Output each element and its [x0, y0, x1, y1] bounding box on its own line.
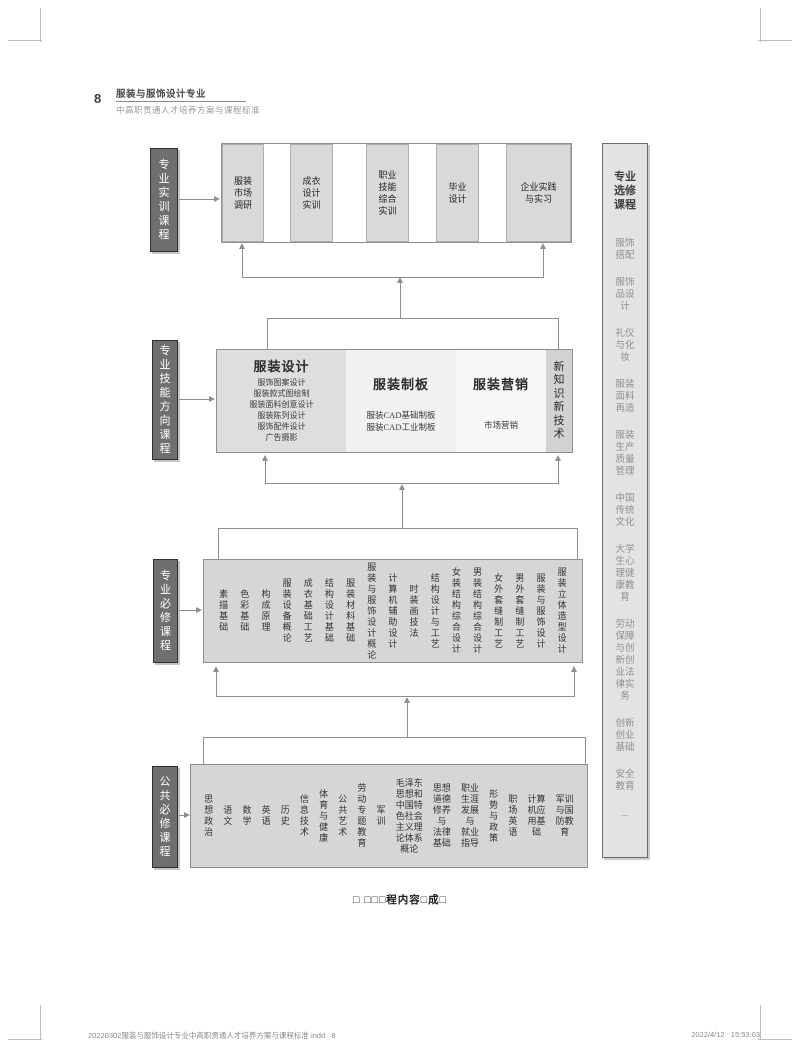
crop-mark [40, 8, 41, 42]
major-course: 构 成 原 理 [261, 589, 270, 633]
skills-row-box: 服装设计 服饰图案设计 服装款式图绘制 服装面料创意设计 服装陈列设计 服饰配件… [216, 349, 573, 453]
major-required-box: 素 描 基 础色 彩 基 础构 成 原 理服 装 设 备 概 论成 衣 基 础 … [203, 559, 583, 663]
connector-line [577, 528, 578, 559]
crop-mark [758, 40, 792, 41]
connector-line [216, 672, 217, 696]
connector-line [558, 461, 559, 483]
major-course: 男 外 套 缝 制 工 艺 [515, 573, 524, 650]
major-course: 结 构 设 计 与 工 艺 [431, 573, 440, 650]
public-course: 语 文 [223, 805, 232, 827]
electives-sidebar: 专业 选修 课程 服饰 搭配服饰 品设 计礼仪 与化 妆服装 面料 再造服装 生… [602, 143, 648, 858]
public-course: 职 场 英 语 [508, 794, 517, 838]
header-subtitle: 中高职贯通人才培养方案与课程标准 [116, 104, 260, 116]
public-course: 思 想 政 治 [204, 794, 213, 838]
crop-mark [8, 1039, 42, 1040]
arrow-right-icon [209, 396, 215, 402]
public-course: 形 势 与 政 策 [489, 789, 498, 844]
label-practical-training: 专 业 实 训 课 程 [150, 148, 178, 252]
connector-line [400, 283, 401, 319]
major-course: 服 装 立 体 造 型 设 计 [558, 567, 567, 655]
major-course: 结 构 设 计 基 础 [325, 578, 334, 644]
crop-mark [40, 1005, 41, 1039]
connector-line [543, 249, 544, 278]
connector-line [203, 737, 586, 738]
connector-line [267, 318, 268, 349]
skill-section-courses: 市场营销 [484, 419, 518, 431]
label-skill-direction: 专 业 技 能 方 向 课 程 [152, 340, 178, 460]
footer-timestamp: 2022/4/12 15:53:03 [640, 1030, 760, 1039]
public-course: 数 学 [242, 805, 251, 827]
practical-course: 职业 技能 综合 实训 [366, 144, 409, 242]
major-course: 色 彩 基 础 [240, 589, 249, 633]
skill-section-courses: 服饰图案设计 服装款式图绘制 服装面料创意设计 服装陈列设计 服饰配件设计 广告… [250, 377, 314, 443]
major-course: 男 装 结 构 综 合 设 计 [473, 567, 482, 655]
public-course: 公 共 艺 术 [338, 794, 347, 838]
connector-line [265, 483, 559, 484]
major-course: 计 算 机 辅 助 设 计 [388, 573, 397, 650]
practical-course: 毕业 设计 [436, 144, 479, 242]
skill-section-title: 服装设计 [253, 356, 309, 375]
major-course: 服 装 设 备 概 论 [283, 578, 292, 644]
label-major-required: 专 业 必 修 课 程 [153, 559, 178, 663]
elective-course: 劳动 保障 与创 新创 业法 律实 务 [615, 619, 634, 703]
connector-line [218, 528, 578, 529]
public-course: 职业 生涯 发展 与 就业 指导 [461, 783, 479, 849]
electives-list: 服饰 搭配服饰 品设 计礼仪 与化 妆服装 面料 再造服装 生产 质量 管理中国… [615, 238, 634, 835]
elective-course: 服饰 品设 计 [615, 277, 634, 313]
connector-line [265, 461, 266, 483]
practical-course: 成衣 设计 实训 [290, 144, 333, 242]
arrow-right-icon [214, 196, 220, 202]
elective-course: 服饰 搭配 [615, 238, 634, 262]
major-course: 服 装 与 服 饰 设 计 [536, 573, 545, 650]
crop-mark [8, 40, 42, 41]
connector-line [242, 277, 544, 278]
connector-line [402, 490, 403, 528]
connector-line [216, 696, 575, 697]
practical-row-box: 服装 市场 调研 成衣 设计 实训 职业 技能 综合 实训 毕业 设计 企业实践… [221, 143, 572, 243]
practical-course: 服装 市场 调研 [222, 144, 264, 242]
arrow-right-icon [196, 607, 202, 613]
elective-course: 礼仪 与化 妆 [615, 328, 634, 364]
connector-line [242, 249, 243, 278]
elective-course: ... [621, 808, 628, 820]
skill-section-marketing: 服装营销 市场营销 [456, 350, 546, 452]
connector-line [179, 399, 210, 400]
footer-filename: 20220302服装与服饰设计专业中高职贯通人才培养方案与课程标准.indd 8 [88, 1030, 336, 1041]
major-course: 素 描 基 础 [219, 589, 228, 633]
elective-course: 中国 传统 文化 [615, 493, 634, 529]
public-course: 信 息 技 术 [300, 794, 309, 838]
elective-course: 大学 生心 理健 康教 育 [615, 544, 634, 604]
page-number: 8 [94, 91, 101, 106]
header-rule [116, 101, 246, 102]
elective-course: 安全 教育 [615, 769, 634, 793]
public-course: 军 训 [377, 805, 386, 827]
connector-line [218, 528, 219, 559]
public-course: 英 语 [262, 805, 271, 827]
public-course: 历 史 [281, 805, 290, 827]
skill-section-title: 服装营销 [473, 374, 529, 393]
public-course: 军训 与国 防教 育 [556, 794, 574, 838]
elective-course: 创新 创业 基础 [615, 718, 634, 754]
crop-mark [758, 1039, 792, 1040]
public-course: 体 育 与 健 康 [319, 789, 328, 844]
connector-line [179, 610, 197, 611]
elective-course: 服装 生产 质量 管理 [615, 430, 634, 478]
public-course: 计算 机应 用基 础 [527, 794, 545, 838]
electives-title: 专业 选修 课程 [614, 170, 636, 212]
connector-line [407, 703, 408, 737]
figure-caption: □ □□□程内容□成□ [150, 892, 650, 907]
connector-line [585, 737, 586, 764]
crop-mark [760, 1005, 761, 1039]
practical-course: 企业实践 与实习 [506, 144, 571, 242]
major-course: 女 外 套 缝 制 工 艺 [494, 573, 503, 650]
skill-section-courses: 服装CAD基础制板 服装CAD工业制板 [367, 409, 436, 433]
major-course: 服 装 材 料 基 础 [346, 578, 355, 644]
crop-mark [760, 8, 761, 42]
public-course: 毛泽东 思想和 中国特 色社会 主义理 论体系 概论 [396, 778, 423, 855]
header-title: 服装与服饰设计专业 [116, 86, 206, 100]
label-public-required: 公 共 必 修 课 程 [152, 766, 178, 868]
major-course: 服 装 与 服 饰 设 计 概 论 [367, 562, 376, 661]
elective-course: 服装 面料 再造 [615, 379, 634, 415]
skill-section-patternmaking: 服装制板 服装CAD基础制板 服装CAD工业制板 [346, 350, 456, 452]
connector-line [203, 737, 204, 764]
skill-section-design: 服装设计 服饰图案设计 服装款式图绘制 服装面料创意设计 服装陈列设计 服饰配件… [217, 350, 346, 452]
public-course: 思想 道德 修养 与 法律 基础 [433, 783, 451, 849]
public-required-box: 思 想 政 治语 文数 学英 语历 史信 息 技 术体 育 与 健 康公 共 艺… [190, 764, 588, 868]
connector-line [267, 318, 559, 319]
connector-line [179, 199, 215, 200]
major-course: 时 装 画 技 法 [410, 584, 419, 639]
skill-section-title: 服装制板 [373, 374, 429, 393]
connector-line [574, 672, 575, 696]
document-page: 8 服装与服饰设计专业 中高职贯通人才培养方案与课程标准 专业 选修 课程 服饰… [0, 0, 800, 1054]
major-course: 女 装 结 构 综 合 设 计 [452, 567, 461, 655]
public-course: 劳 动 专 题 教 育 [357, 783, 366, 849]
connector-line [558, 318, 559, 349]
skill-section-new-tech: 新 知 识 新 技 术 [546, 350, 572, 452]
major-course: 成 衣 基 础 工 艺 [304, 578, 313, 644]
